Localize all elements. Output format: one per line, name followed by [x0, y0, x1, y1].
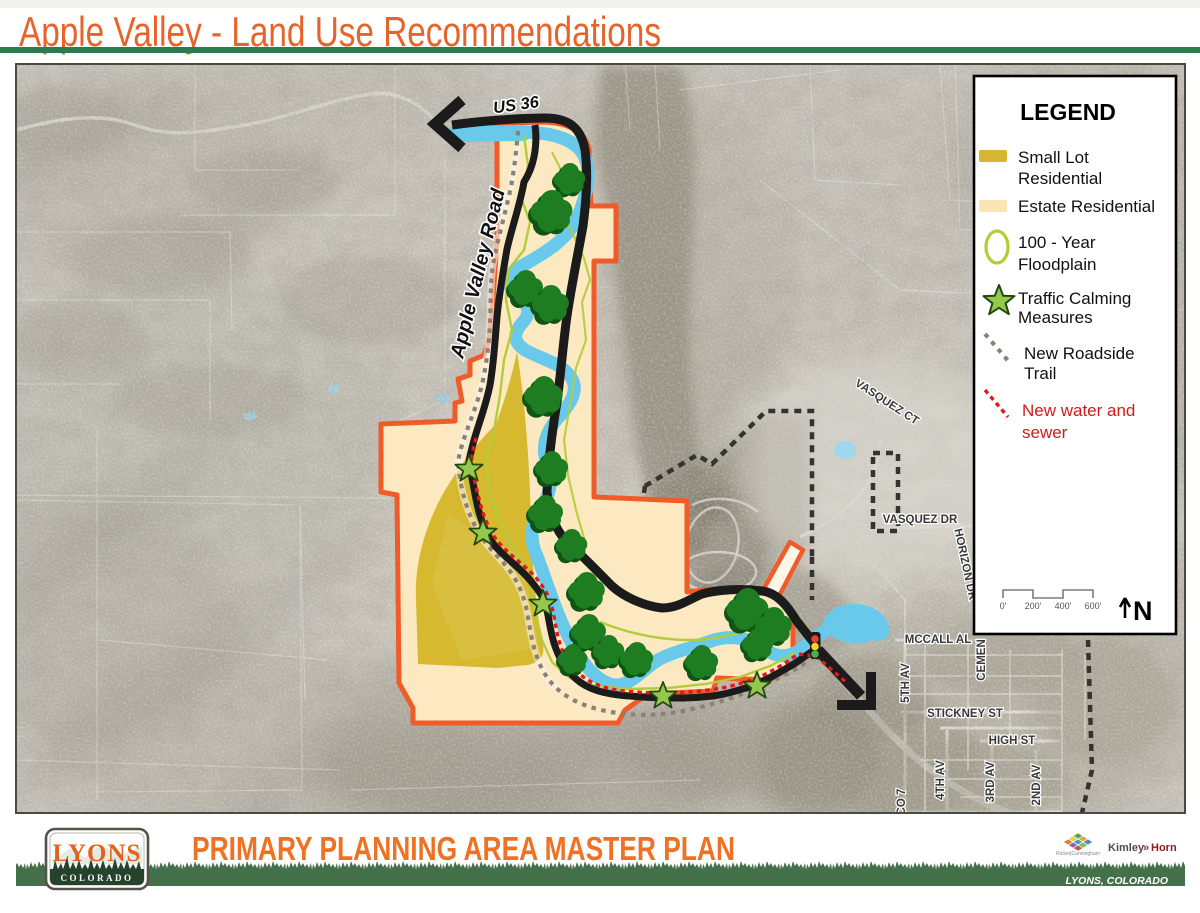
svg-text:PRIMARY PLANNING AREA MASTER P: PRIMARY PLANNING AREA MASTER PLAN: [192, 830, 735, 867]
svg-text:Floodplain: Floodplain: [1018, 255, 1096, 274]
svg-text:N: N: [1133, 596, 1153, 626]
svg-text:Horn: Horn: [1151, 842, 1177, 854]
svg-text:MCCALL AL: MCCALL AL: [905, 634, 971, 646]
svg-text:Estate Residential: Estate Residential: [1018, 197, 1155, 216]
svg-text:CO 7: CO 7: [896, 789, 908, 816]
svg-text:100 - Year: 100 - Year: [1018, 233, 1096, 252]
svg-text:Kimley: Kimley: [1108, 842, 1145, 854]
svg-text:Traffic Calming: Traffic Calming: [1018, 289, 1131, 308]
svg-text:COLORADO: COLORADO: [60, 873, 133, 883]
svg-text:STICKNEY ST: STICKNEY ST: [927, 708, 1003, 720]
svg-text:4TH AV: 4TH AV: [935, 760, 947, 800]
svg-text:Trail: Trail: [1024, 364, 1056, 383]
svg-text:Small Lot: Small Lot: [1018, 148, 1089, 167]
svg-text:LYONS, COLORADO: LYONS, COLORADO: [1066, 875, 1168, 887]
svg-text:0': 0': [1000, 601, 1007, 611]
svg-text:3RD AV: 3RD AV: [985, 761, 997, 802]
svg-text:600': 600': [1085, 601, 1102, 611]
svg-text:400': 400': [1055, 601, 1072, 611]
svg-text:sewer: sewer: [1022, 423, 1068, 442]
svg-text:HIGH ST: HIGH ST: [989, 735, 1036, 747]
svg-text:Residential: Residential: [1018, 169, 1102, 188]
svg-text:Ricker|Cunningham: Ricker|Cunningham: [1056, 851, 1100, 857]
svg-text:VASQUEZ DR: VASQUEZ DR: [883, 514, 958, 526]
svg-text:CEMEN: CEMEN: [976, 639, 988, 681]
svg-text:2ND AV: 2ND AV: [1031, 764, 1043, 805]
svg-text:New water and: New water and: [1022, 401, 1135, 420]
svg-text:»: »: [1143, 842, 1149, 854]
svg-text:LEGEND: LEGEND: [1020, 99, 1116, 125]
svg-text:Measures: Measures: [1018, 308, 1093, 327]
svg-text:5TH AV: 5TH AV: [900, 663, 912, 703]
svg-text:200': 200': [1025, 601, 1042, 611]
svg-text:New Roadside: New Roadside: [1024, 344, 1135, 363]
